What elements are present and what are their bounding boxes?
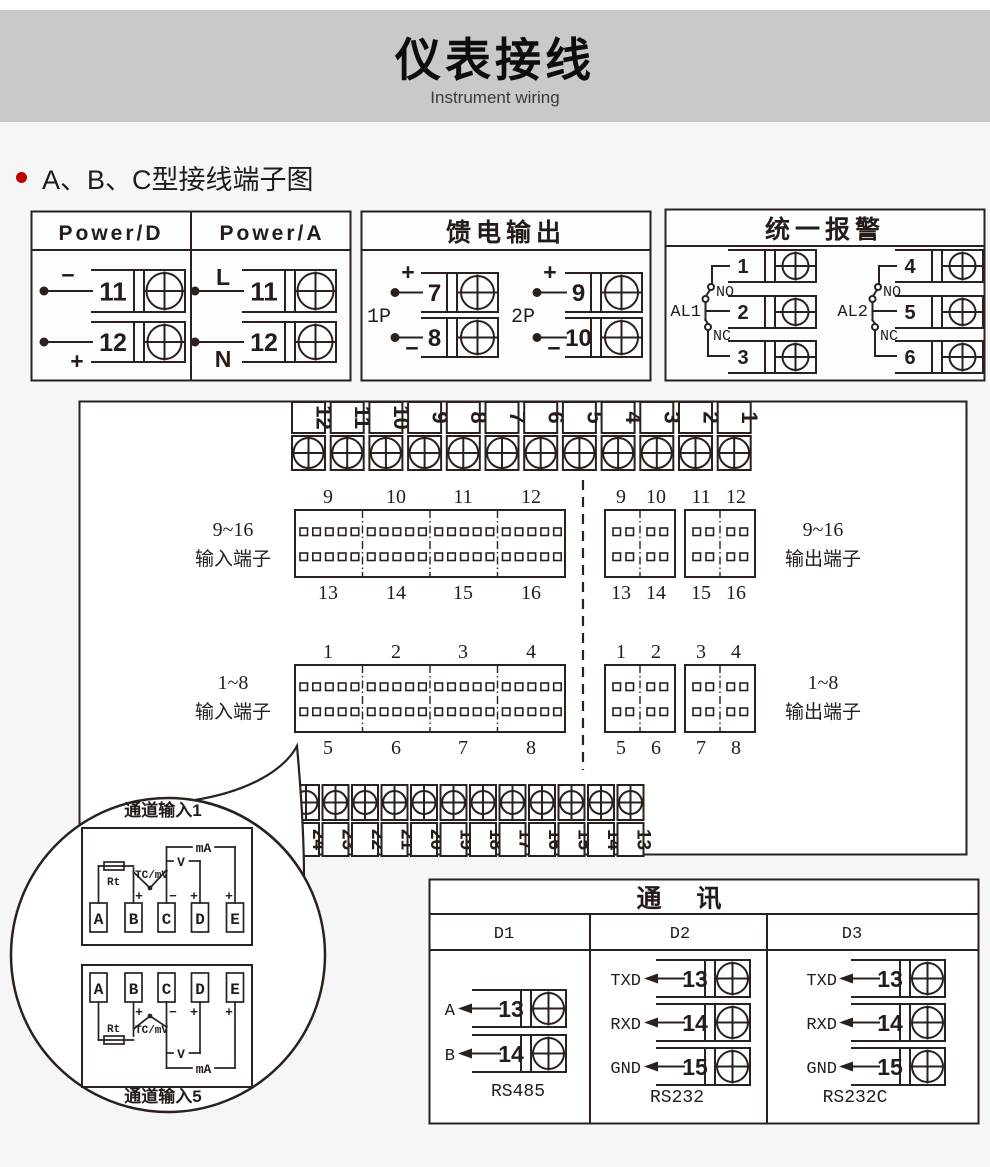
group-label-1p: 1P: [367, 306, 391, 329]
polarity-sign: +: [225, 889, 233, 904]
signal-label: RXD: [806, 1016, 837, 1035]
signal-label: A: [445, 1002, 456, 1021]
block-range-label: 1~8: [808, 672, 839, 694]
col-header-d1: D1: [494, 925, 514, 944]
no-label: NO: [883, 284, 901, 301]
polarity-sign: +: [225, 1005, 233, 1020]
terminal-number: 11: [99, 276, 127, 306]
power-d-title: Power/D: [58, 222, 163, 245]
block-number: 11: [691, 486, 710, 508]
page-header: 仪表接线 Instrument wiring: [0, 10, 990, 122]
section-heading-text: A、B、C型接线端子图: [42, 158, 314, 197]
block-number: 2: [391, 641, 401, 663]
wire-sign: L: [216, 264, 230, 290]
block-number: 14: [386, 582, 406, 604]
wire-sign: +: [401, 259, 414, 285]
power-box: Power/D Power/A 11 12 11 12 − + L N: [30, 210, 352, 382]
terminal-number: 13: [682, 966, 708, 992]
wire-sign: −: [547, 335, 560, 361]
bullet-icon: [16, 172, 27, 183]
block-number: 3: [458, 641, 468, 663]
block-number: 8: [526, 737, 536, 759]
terminal-number: 7: [428, 280, 441, 307]
comm-box: 通 讯 D1 D2 D3 13 14 A B RS485 13 14 15 TX…: [428, 878, 980, 1125]
terminal-number: 8: [428, 325, 441, 352]
top-white-strip: [0, 0, 990, 10]
block-cjk-label: 输入端子: [195, 548, 271, 570]
terminal-letter: E: [230, 981, 240, 999]
polarity-sign: −: [169, 1005, 177, 1020]
terminal-number: 13: [498, 996, 524, 1022]
polarity-sign: +: [135, 1005, 143, 1020]
signal-label: GND: [806, 1060, 837, 1079]
channel-callout-balloon: 通道输入1 通道输入5 A B C D E Rt TC/mV + −: [0, 720, 360, 1120]
block-number: 7: [696, 737, 706, 759]
terminal-number: 6: [904, 347, 915, 369]
polarity-sign: +: [190, 889, 198, 904]
block-number: 3: [696, 641, 706, 663]
wire-sign: −: [405, 335, 418, 361]
strip-terminal-number: 13: [632, 829, 653, 850]
terminal-letter: B: [129, 981, 139, 999]
terminal-number: 1: [737, 256, 748, 278]
wire-sign: −: [61, 262, 74, 288]
alarm-box: 统一报警 1 2 3 4 5 6 NO NC AL1: [664, 208, 986, 382]
block-cjk-label: 输出端子: [785, 701, 861, 723]
block-number: 15: [453, 582, 473, 604]
signal-label: TXD: [806, 972, 837, 991]
block-number: 7: [458, 737, 468, 759]
block-number: 13: [318, 582, 338, 604]
feed-output-box: 馈电输出 7 8 9 10 + − + − 1P 2P: [360, 210, 652, 382]
block-number: 4: [526, 641, 536, 663]
block-number: 9: [323, 486, 333, 508]
terminal-letter: D: [195, 911, 205, 929]
terminal-number: 5: [904, 302, 915, 324]
terminal-number: 14: [682, 1010, 708, 1036]
block-number: 1: [616, 641, 626, 663]
section-heading: A、B、C型接线端子图: [16, 158, 314, 197]
channel-1-title: 通道输入1: [124, 800, 201, 820]
block-range-label: 9~16: [803, 519, 844, 541]
port-type-label: RS485: [491, 1082, 545, 1102]
wire-sign: N: [215, 346, 232, 372]
balloon-circle: [11, 798, 325, 1112]
v-label: V: [177, 855, 185, 870]
strip-terminal-number: 1: [737, 411, 762, 423]
polarity-sign: −: [169, 889, 177, 904]
block-number: 8: [731, 737, 741, 759]
v-label: V: [177, 1047, 185, 1062]
terminal-number: 4: [904, 256, 916, 278]
signal-label: TXD: [610, 972, 641, 991]
wire-sign: +: [70, 348, 83, 374]
block-number: 2: [651, 641, 661, 663]
polarity-sign: +: [135, 889, 143, 904]
tc-mv-label: TC/mV: [135, 1025, 168, 1037]
page: 仪表接线 Instrument wiring A、B、C型接线端子图 Power…: [0, 0, 990, 1167]
terminal-number: 13: [877, 966, 903, 992]
terminal-letter: D: [195, 981, 205, 999]
nc-label: NC: [713, 328, 731, 345]
port-type-label: RS232: [650, 1088, 704, 1108]
terminal-number: 12: [99, 329, 127, 357]
block-number: 16: [726, 582, 746, 604]
ma-label: mA: [196, 1062, 212, 1077]
page-title: 仪表接线: [0, 24, 990, 90]
block-number: 15: [691, 582, 711, 604]
top-terminal-strip: 121110987654321: [292, 402, 762, 470]
signal-label: GND: [610, 1060, 641, 1079]
block-number: 11: [453, 486, 472, 508]
nc-label: NC: [880, 328, 898, 345]
signal-label: B: [445, 1047, 455, 1066]
col-header-d3: D3: [842, 925, 862, 944]
block-number: 12: [521, 486, 541, 508]
terminal-number: 15: [877, 1054, 903, 1080]
channel-5-title: 通道输入5: [124, 1086, 201, 1106]
tc-mv-label: TC/mV: [135, 870, 168, 882]
block-range-label: 9~16: [213, 519, 254, 541]
al1-label: AL1: [670, 303, 701, 322]
terminal-letter: C: [162, 911, 172, 929]
comm-title: 通 讯: [637, 885, 736, 913]
terminal-letter: A: [94, 911, 104, 929]
block-number: 6: [391, 737, 401, 759]
terminal-number: 3: [737, 347, 748, 369]
signal-label: RXD: [610, 1016, 641, 1035]
terminal-letter: B: [129, 911, 139, 929]
block-number: 16: [521, 582, 541, 604]
block-number: 1: [323, 641, 333, 663]
terminal-number: 14: [498, 1041, 524, 1067]
block-number: 4: [731, 641, 741, 663]
terminal-letter: A: [94, 981, 104, 999]
block-range-label: 1~8: [218, 672, 249, 694]
terminal-number: 15: [682, 1054, 708, 1080]
port-type-label: RS232C: [823, 1088, 888, 1108]
terminal-number: 12: [250, 329, 278, 357]
power-a-title: Power/A: [219, 222, 324, 245]
terminal-number: 10: [565, 325, 592, 352]
terminal-letter: E: [230, 911, 240, 929]
block-number: 10: [386, 486, 406, 508]
ma-label: mA: [196, 841, 212, 856]
block-number: 12: [726, 486, 746, 508]
group-label-2p: 2P: [511, 306, 535, 329]
terminal-letter: C: [162, 981, 172, 999]
terminal-number: 2: [737, 302, 748, 324]
terminal-number: 9: [572, 280, 585, 307]
rt-label: Rt: [107, 877, 120, 889]
al2-label: AL2: [837, 303, 868, 322]
page-subtitle: Instrument wiring: [0, 88, 990, 108]
polarity-sign: +: [190, 1005, 198, 1020]
block-number: 10: [646, 486, 666, 508]
block-number: 6: [651, 737, 661, 759]
terminal-number: 14: [877, 1010, 903, 1036]
block-number: 5: [616, 737, 626, 759]
block-number: 14: [646, 582, 666, 604]
terminal-number: 11: [250, 276, 278, 306]
alarm-title: 统一报警: [765, 215, 885, 244]
rt-label: Rt: [107, 1024, 120, 1036]
block-cjk-label: 输出端子: [785, 548, 861, 570]
wire-sign: +: [543, 259, 556, 285]
feed-title: 馈电输出: [446, 218, 566, 247]
block-number: 13: [611, 582, 631, 604]
col-header-d2: D2: [670, 925, 690, 944]
no-label: NO: [716, 284, 734, 301]
block-number: 9: [616, 486, 626, 508]
